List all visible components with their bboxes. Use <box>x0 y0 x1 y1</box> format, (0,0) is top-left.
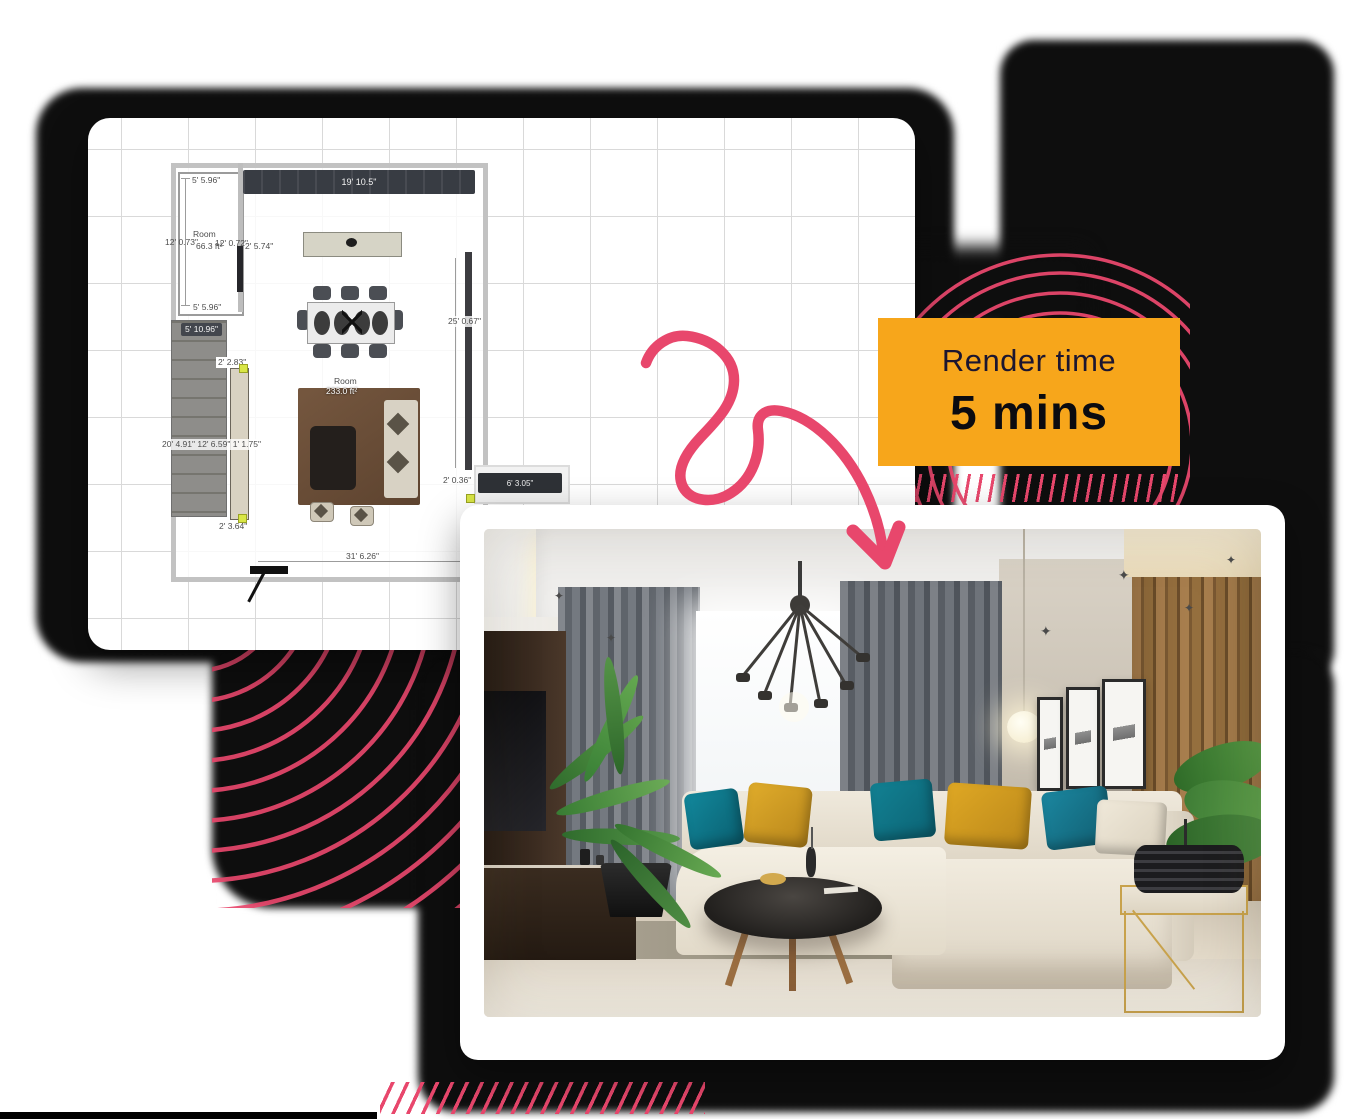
door-left-wall <box>237 246 243 292</box>
marker-rail-bottom <box>238 514 247 523</box>
ceiling-light-icon: ✦ <box>1226 553 1236 567</box>
dim-left-top: 5' 5.96" <box>192 176 220 185</box>
dim-right-wall: 25' 0.67" <box>446 316 483 327</box>
dining-chair <box>369 344 387 358</box>
room-main-area: 233.0 ft² <box>326 387 357 396</box>
pink-hatch-below-badge <box>898 474 1178 502</box>
marketing-graphic: 19' 10.5" <box>0 0 1372 1119</box>
pink-arcs-lower-left <box>212 646 470 908</box>
dim-2-574: 2' 5.74" <box>245 242 273 251</box>
accent-chair <box>310 502 334 522</box>
pink-hatch-bottom <box>380 1082 705 1114</box>
tv-console: 6' 3.05" <box>478 473 562 493</box>
sliding-door-right-wall <box>465 252 472 470</box>
render-time-badge: Render time 5 mins <box>878 318 1180 466</box>
dim-bottom-width: 31' 6.26" <box>346 552 379 561</box>
black-bottom-bar <box>0 1112 377 1119</box>
dining-table <box>307 302 395 344</box>
sofa-top-view <box>310 426 356 490</box>
dim-12a: 12' 0.73" <box>165 238 198 247</box>
dining-chair <box>313 344 331 358</box>
marker-rail-top <box>239 364 248 373</box>
ceiling-light-icon: ✦ <box>554 589 564 603</box>
ceiling-light-icon: ✦ <box>1040 623 1052 640</box>
ceiling-light-icon: ✦ <box>1118 567 1130 584</box>
render-card: ✦ ✦ ✦ ✦ ✦ ✦ <box>460 505 1285 1060</box>
dining-chair <box>341 344 359 358</box>
badge-line1: Render time <box>942 343 1116 379</box>
console-dimension-label: 6' 3.05" <box>507 479 534 488</box>
ceiling-light-icon: ✦ <box>606 631 616 645</box>
dining-chair <box>369 286 387 300</box>
entry-door <box>250 566 288 574</box>
dining-chair <box>341 286 359 300</box>
closet-bar: 19' 10.5" <box>243 170 475 194</box>
stairs <box>171 320 227 517</box>
accent-chair <box>350 506 374 526</box>
badge-line2: 5 mins <box>950 386 1108 441</box>
dining-chair <box>313 286 331 300</box>
dim-2-036: 2' 0.36" <box>443 476 471 485</box>
ceiling-light-icon: ✦ <box>1184 601 1194 615</box>
living-rug <box>298 388 420 505</box>
photo-vignette <box>484 529 1261 1017</box>
stairs-dimension-label: 5' 10.96" <box>181 323 222 336</box>
dim-12b: 12' 0.72" <box>215 239 248 248</box>
marker-console <box>466 494 475 503</box>
interior-render-photo: ✦ ✦ ✦ ✦ ✦ ✦ <box>484 529 1261 1017</box>
closet-dimension-label: 19' 10.5" <box>342 177 377 187</box>
dim-2-364: 2' 3.64" <box>219 522 247 531</box>
sideboard-bowl <box>346 238 357 247</box>
dim-left-composite: 20' 4.91" 12' 6.59" 1' 1.75" <box>160 439 263 450</box>
dim-left-bottom: 5' 5.96" <box>193 303 221 312</box>
